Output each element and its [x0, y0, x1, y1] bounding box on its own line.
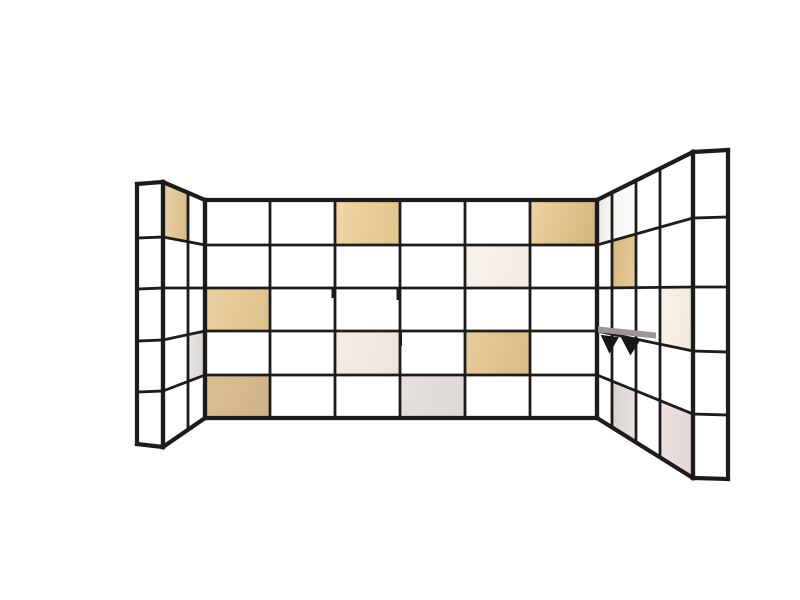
frame-line — [163, 375, 205, 391]
frame-line — [137, 391, 163, 392]
panel-cream-laminate — [335, 331, 400, 375]
frame-line — [693, 150, 728, 152]
shelving-unit-render — [0, 0, 800, 600]
frame-line — [693, 217, 728, 218]
panel-cream-laminate — [465, 245, 530, 288]
panel-plywood — [335, 200, 400, 245]
panel-plywood — [530, 200, 597, 245]
panel-plywood — [465, 331, 530, 375]
panel-grey-laminate — [400, 375, 465, 418]
frame-line — [693, 478, 728, 479]
frame-line — [137, 237, 163, 238]
panel-cream-laminate — [660, 287, 693, 351]
product-render-canvas — [0, 0, 800, 600]
panel-plywood — [612, 234, 636, 288]
frame-line — [137, 444, 163, 447]
frame-line — [137, 340, 163, 341]
page: { "scene": { "description": "3D product … — [0, 0, 800, 600]
cone-hook — [602, 336, 619, 353]
panel-grey-laminate — [188, 331, 205, 381]
frame-line — [693, 351, 728, 352]
frame-line — [693, 414, 728, 415]
panel-plywood — [205, 375, 270, 418]
frame-line — [137, 182, 163, 184]
frame-line — [137, 288, 163, 289]
frame-line — [163, 418, 205, 447]
panel-plywood — [205, 288, 270, 331]
